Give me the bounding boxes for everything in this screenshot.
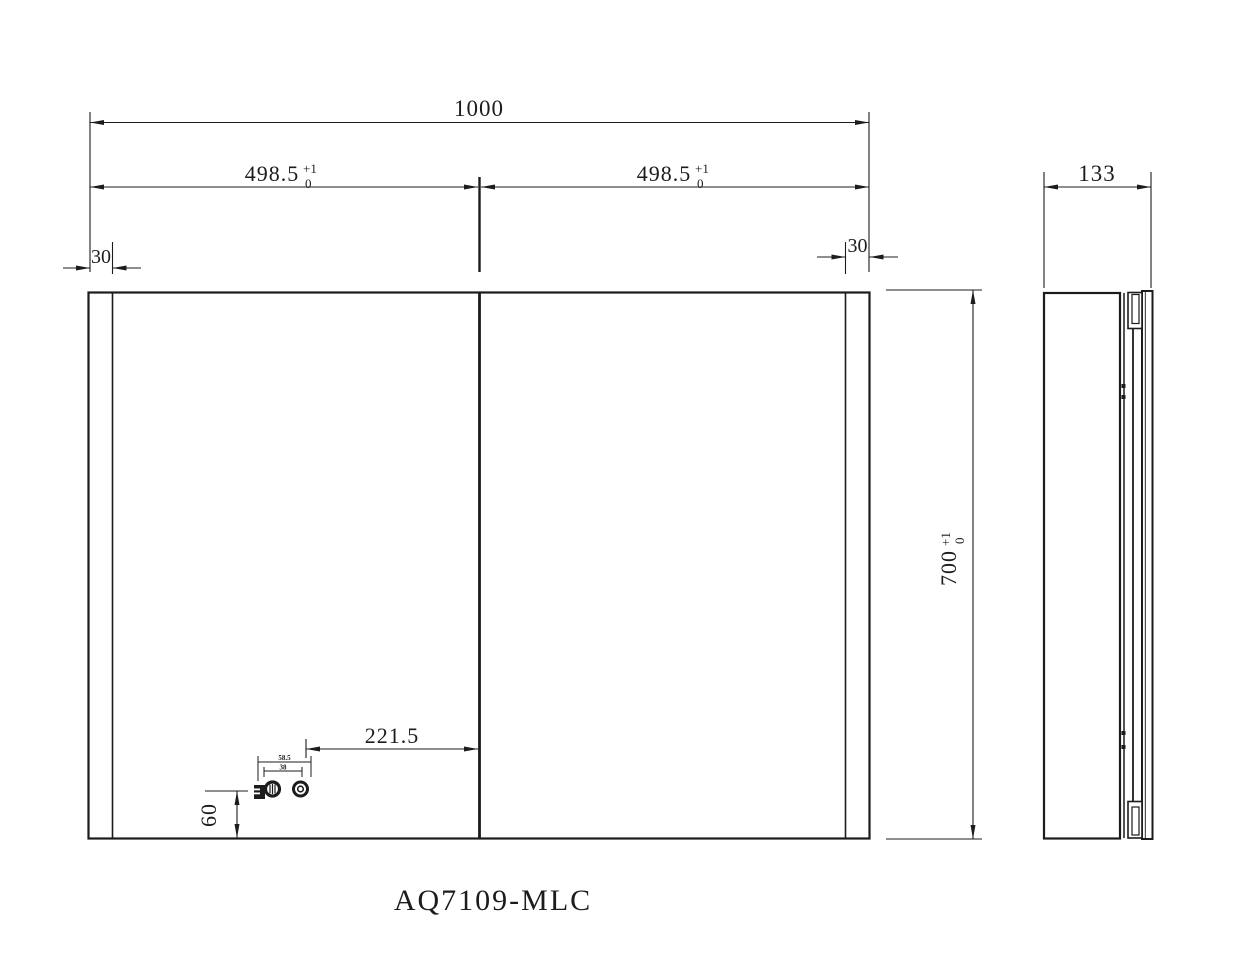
dim-label: 30 [91, 246, 111, 268]
arrowhead [855, 120, 869, 125]
arrowhead [76, 266, 90, 271]
connector-slot [254, 789, 260, 791]
side-view [1044, 291, 1153, 839]
door-panel-profile [1142, 291, 1153, 839]
dim-label: 498.5 [245, 161, 300, 186]
dim-label-tiny: 38 [280, 764, 288, 772]
connector-plug [254, 785, 265, 799]
front-view [89, 177, 870, 839]
dim-label-tiny: 58.5 [278, 754, 291, 762]
hinge-bottom-inner [1132, 807, 1139, 835]
dim-tolerance-upper: +1 [938, 532, 953, 546]
arrowhead [971, 290, 976, 304]
dim-tolerance-upper: +1 [303, 161, 317, 176]
dim-label: 221.5 [365, 723, 420, 748]
dim-label: 700 [936, 550, 961, 586]
drawing-title: AQ7109-MLC [394, 884, 592, 917]
drawing-canvas: 1000 498.5 +1 0 498.5 +1 0 30 30 [0, 0, 1233, 956]
connector-slot [254, 793, 260, 795]
dim-half-width-right: 498.5 +1 0 [481, 161, 869, 191]
dim-label: 30 [848, 235, 868, 257]
dim-label: 133 [1078, 161, 1116, 186]
arrowhead [90, 120, 104, 125]
push-button [294, 782, 308, 796]
dim-label-1000: 1000 [454, 96, 504, 121]
hinge-screw-mark [1122, 395, 1126, 399]
arrowhead [855, 185, 869, 190]
arrowhead [464, 185, 478, 190]
dim-label: 498.5 [637, 161, 692, 186]
dim-label: 60 [196, 803, 221, 827]
arrowhead [870, 255, 884, 260]
dim-height: 700 +1 0 [886, 290, 982, 839]
dim-half-width-left: 498.5 +1 0 [90, 161, 478, 191]
arrowhead [1137, 185, 1151, 190]
hinge-screw-mark [1122, 745, 1126, 749]
arrowhead [113, 266, 127, 271]
arrowhead [832, 255, 846, 260]
hinge-top-inner [1132, 295, 1139, 324]
arrowhead [971, 825, 976, 839]
dim-tolerance-lower: 0 [305, 176, 312, 191]
arrowhead [1044, 185, 1058, 190]
hinge-screw-mark [1122, 731, 1126, 735]
arrowhead [481, 185, 495, 190]
dim-tolerance-lower: 0 [697, 176, 704, 191]
dim-edge-left: 30 [63, 242, 141, 274]
dim-tolerance-lower: 0 [952, 538, 967, 545]
hinge-screw-mark [1122, 384, 1126, 388]
dim-depth: 133 [1044, 161, 1151, 288]
dim-edge-right: 30 [817, 235, 898, 274]
cabinet-body-profile [1044, 293, 1120, 839]
dim-tolerance-upper: +1 [695, 161, 709, 176]
arrowhead [90, 185, 104, 190]
